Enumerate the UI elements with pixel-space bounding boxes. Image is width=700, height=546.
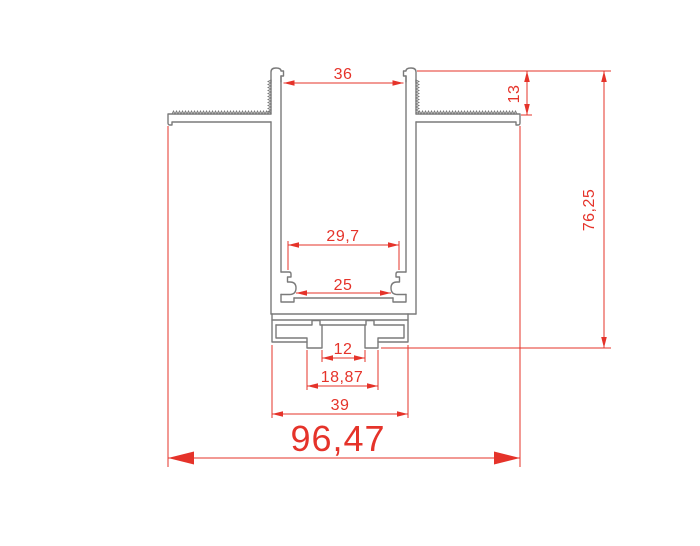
channel-bottom-groove-right [393,295,406,303]
arrowhead-up [524,71,530,82]
profile-outline [168,68,520,348]
dimension-total-width: 96,47 [168,126,520,467]
dim-label-top-opening: 36 [334,66,353,83]
knurled-edges [172,80,517,114]
dimension-slot-width: 12 [322,341,365,362]
drawing-sheet: 36 13 76,25 29,7 25 [0,0,700,546]
base-hat-inner-cavity-left [276,325,307,342]
dim-label-total-width: 96,47 [290,418,385,459]
channel-bottom-groove-left [281,295,294,303]
dimension-flange-height: 13 [506,71,532,115]
base-hat-inner-cavity-right [378,325,404,342]
dim-label-flange-height: 13 [506,85,523,104]
arrowhead-up [601,71,607,82]
dim-label-slot-width: 12 [334,341,353,358]
left-flange [168,114,271,125]
base-hat-inner-top-right [365,321,404,326]
arrowhead-left [322,355,333,361]
dim-label-stem-width: 18,87 [321,369,364,386]
arrowhead-right [397,411,408,417]
dim-label-upper-inner-width: 29,7 [326,228,359,245]
arrowhead-right [388,242,399,248]
dimension-top-opening: 36 [284,66,404,86]
dim-label-total-height: 76,25 [581,189,598,232]
arrowhead-right [380,290,391,296]
dimension-clip-span: 25 [296,277,391,296]
arrowhead-left [296,290,307,296]
dim-label-clip-span: 25 [334,277,353,294]
right-cover-clip [391,272,406,295]
arrowhead-down [524,104,530,115]
arrowhead-left [284,80,295,86]
arrowhead-right [393,80,404,86]
arrowhead-left [168,452,194,465]
arrowhead-left [288,242,299,248]
arrowhead-left [307,383,318,389]
arrowhead-right [354,355,365,361]
left-cover-clip [281,272,296,295]
dim-label-base-width: 39 [331,397,350,414]
right-flange [416,114,520,125]
dimension-upper-inner-width: 29,7 [288,228,399,270]
arrowhead-right [367,383,378,389]
arrowhead-left [272,411,283,417]
arrowhead-down [601,337,607,348]
technical-drawing-canvas: 36 13 76,25 29,7 25 [0,0,700,546]
base-hat-inner-top-left [276,321,322,326]
arrowhead-right [494,452,520,465]
